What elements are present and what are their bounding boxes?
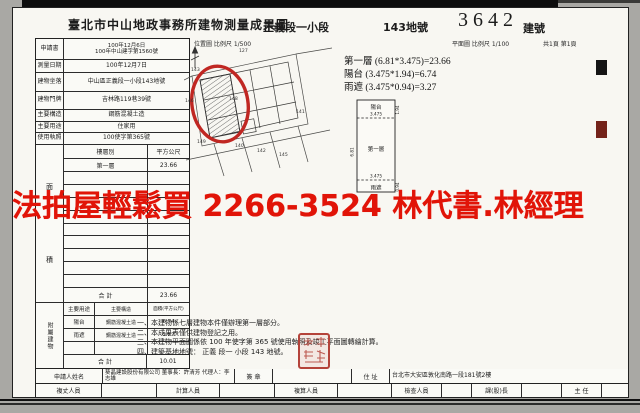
- area-calculations: 第一層 (6.81*3.475)=23.66 陽台 (3.475*1.94)=6…: [344, 56, 451, 95]
- binding-mark-red: [596, 121, 607, 138]
- parcel-140: 140: [235, 143, 244, 149]
- structure-value: 鋼筋混凝土造: [64, 110, 189, 121]
- applicant-name-label: 申請人姓名: [36, 369, 102, 383]
- row-structure: 主要構造 鋼筋混凝土造: [36, 109, 189, 121]
- survey-date-label: 測量日期: [36, 60, 64, 72]
- address-value: 台北市大安區敦化南路一段181號2樓: [389, 369, 628, 383]
- applicant-row: 申請人姓名 葵晶建設股份有限公司 董事長：許清芳 代理人：李志雄 簽 章 住 址…: [35, 369, 629, 384]
- diagram-first-floor-label: 第一層: [368, 145, 385, 153]
- application-value: 100年12月6日 100年中山建字第1560號: [64, 39, 189, 59]
- attachment-total-label: 合 計: [64, 355, 147, 368]
- survey-date-value: 100年12月7日: [64, 60, 189, 72]
- note-1: 一、本建物係七層建物本件僅辦理第一層部分。: [137, 319, 437, 329]
- col-floor: 樓層別: [64, 145, 148, 158]
- chief-label: 課(股)長: [471, 384, 521, 397]
- north-arrow-icon: [191, 47, 199, 68]
- signature-label: 簽 章: [234, 369, 272, 383]
- surveyor-blank: [101, 384, 156, 397]
- door-plate-value: 吉林路119巷39號: [64, 92, 189, 109]
- floor-total-label: 合 計: [64, 288, 148, 302]
- row-license: 使用執照 100使字第365號: [36, 132, 189, 144]
- foreclosure-ad-watermark: 法拍屋輕鬆買 2266-3524 林代書.林經理: [12, 181, 640, 225]
- col-sqm: 平方公尺: [148, 145, 189, 158]
- row-door-plate: 建物門牌 吉林路119巷39號: [36, 91, 189, 109]
- side-label-area-2: 積: [46, 255, 53, 265]
- building-site-value: 中山區正義段一小段143地號: [64, 73, 189, 91]
- address-label: 住 址: [351, 369, 389, 383]
- page-count: 共1頁 第1頁: [543, 39, 577, 48]
- floor-area-total-row: 合 計 23.66: [64, 287, 189, 302]
- floor-area-header: 樓層別 平方公尺: [64, 145, 189, 158]
- attachment-side-text: 附屬建物: [45, 322, 54, 350]
- staff-row: 複丈人員 計算人員 複算人員 檢查人員 課(股)長 主 任: [35, 384, 629, 398]
- chief-blank: [521, 384, 561, 397]
- row-building-site: 建物坐落 中山區正義段一小段143地號: [36, 72, 189, 91]
- parcel-149: 149: [197, 139, 206, 145]
- parcel-148: 148: [229, 96, 238, 102]
- parcel-127: 127: [239, 48, 248, 54]
- attachment-header: 主要用途 主要構造 面積(平方公尺): [64, 303, 189, 315]
- land-number: 143地號: [383, 19, 428, 35]
- license-value: 100使字第365號: [64, 133, 189, 144]
- applicant-name-value: 葵晶建設股份有限公司 董事長：許清芳 代理人：李志雄: [102, 369, 234, 383]
- building-number: 3642: [458, 9, 518, 32]
- binding-mark-black: [596, 60, 607, 75]
- section-name: 正義段一小段: [263, 19, 329, 35]
- empty-row: [64, 248, 189, 261]
- col-area: 面積(平方公尺): [148, 303, 189, 315]
- application-doc-number: 100年中山建字第1560號: [95, 49, 158, 56]
- row-usage: 主要用途 住家用: [36, 121, 189, 132]
- empty-row: [64, 274, 189, 287]
- door-plate-label: 建物門牌: [36, 92, 64, 109]
- checker-label: 複算人員: [274, 384, 337, 397]
- diagram-balcony-label: 陽台: [370, 103, 382, 111]
- diagram-height: 6.81: [350, 147, 355, 157]
- diagram-width-bottom: 3.475: [370, 174, 382, 179]
- attachment-side-label: 附屬建物: [36, 303, 64, 368]
- scan-top-bar-right: [558, 0, 640, 3]
- empty-row: [64, 261, 189, 274]
- calc-first-floor: 第一層 (6.81*3.475)=23.66: [344, 56, 451, 69]
- scan-bottom-line-1: [0, 399, 640, 401]
- building-number-label: 建號: [523, 20, 545, 36]
- scanned-survey-document: { "header": { "office_title": "臺北市中山地政事務…: [0, 0, 640, 413]
- parcel-142: 142: [257, 148, 266, 154]
- diagram-balcony-depth: 1.94: [395, 105, 400, 114]
- balcony-label: 陽台: [64, 316, 95, 328]
- note-2: 二、本成果表僅供建物登記之用。: [137, 329, 437, 339]
- usage-label: 主要用途: [36, 122, 64, 132]
- scan-bottom-line-2: [0, 403, 640, 405]
- notes-block: 一、本建物係七層建物本件僅辦理第一層部分。 二、本成果表僅供建物登記之用。 三、…: [137, 319, 437, 357]
- canopy-label: 雨遮: [64, 329, 95, 341]
- empty-row: [64, 235, 189, 248]
- calculator-blank: [219, 384, 274, 397]
- calculator-label: 計算人員: [156, 384, 219, 397]
- inspector-label: 檢查人員: [391, 384, 441, 397]
- application-label: 申請書: [36, 39, 64, 59]
- col-usage: 主要用途: [64, 303, 95, 315]
- license-label: 使用執照: [36, 133, 64, 144]
- diagram-width-top: 3.475: [370, 112, 382, 117]
- signature-blank: [272, 369, 351, 383]
- structure-label: 主要構造: [36, 110, 64, 121]
- note-3: 三、本建物平面圖係依 100 年使字第 365 號使用執照及竣工平面圖轉繪計算。: [137, 338, 437, 348]
- document-title: 臺北市中山地政事務所建物測量成果圖: [68, 16, 289, 33]
- subject-building-hatched: [200, 74, 240, 138]
- floor-plan-scale: 平面圖 比例尺 1/100: [452, 39, 509, 48]
- director-blank: [601, 384, 628, 397]
- col-structure: 主要構造: [95, 303, 148, 315]
- parcel-141: 141: [296, 109, 305, 115]
- parcel-145: 145: [279, 152, 288, 158]
- official-seal: [297, 332, 331, 370]
- floor-1-area: 23.66: [148, 159, 189, 171]
- parcel-146: 146: [185, 98, 194, 104]
- checker-blank: [337, 384, 391, 397]
- floor-area-row-1: 第一層 23.66: [64, 158, 189, 171]
- floor-1-label: 第一層: [64, 159, 148, 171]
- usage-value: 住家用: [64, 122, 189, 132]
- scan-top-bar: [22, 0, 558, 7]
- inspector-blank: [441, 384, 471, 397]
- calc-canopy: 雨遮 (3.475*0.94)=3.27: [344, 82, 451, 95]
- note-4: 四、建築基地地號： 正義 段一 小段 143 地號。: [137, 348, 437, 358]
- row-application: 申請書 100年12月6日 100年中山建字第1560號: [36, 39, 189, 59]
- building-site-label: 建物坐落: [36, 73, 64, 91]
- director-label: 主 任: [561, 384, 601, 397]
- row-survey-date: 測量日期 100年12月7日: [36, 59, 189, 72]
- surveyor-label: 複丈人員: [36, 384, 101, 397]
- location-map: 127 143 146 148 141 149 140 142 145: [184, 44, 332, 178]
- calc-balcony: 陽台 (3.475*1.94)=6.74: [344, 69, 451, 82]
- floor-total-value: 23.66: [148, 288, 189, 302]
- parcel-143: 143: [191, 67, 200, 73]
